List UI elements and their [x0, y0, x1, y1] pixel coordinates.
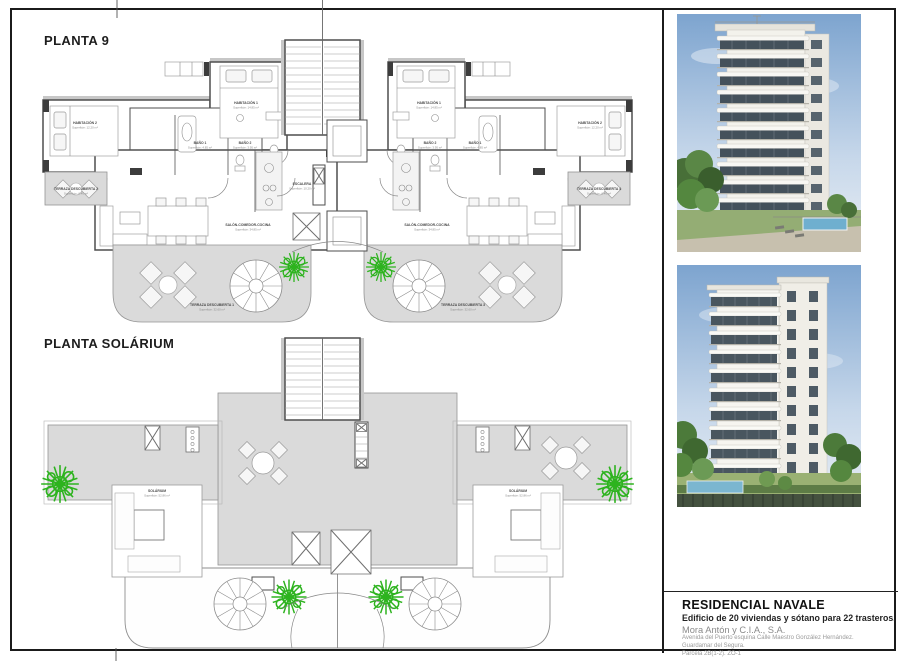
drawing-sheet: PLANTA 9 PLANTA SOLÁRIUM [0, 0, 908, 661]
pool [687, 481, 743, 493]
svg-text:TERRAZA DESCUBIERTA 4: TERRAZA DESCUBIERTA 4 [577, 187, 621, 191]
project-parcel: Parcela 2B(1-2). ZO-1 [682, 651, 898, 659]
svg-text:Superficie: 14.85 m²: Superficie: 14.85 m² [416, 105, 442, 109]
promoter-name: Mora Antón y C.I.A., S.A. [682, 625, 898, 635]
skylight-shaft [331, 530, 371, 574]
title-block-rule [664, 591, 898, 592]
svg-text:Superficie: 34.85 m²: Superficie: 34.85 m² [414, 227, 440, 231]
svg-text:BAÑO 2: BAÑO 2 [424, 140, 437, 145]
room-label: BAÑO 2 [239, 140, 252, 145]
project-name: RESIDENCIAL NAVALE [682, 598, 898, 612]
svg-text:Superficie: 52.86 m²: Superficie: 52.86 m² [144, 493, 170, 497]
project-city: Guardamar del Segura. [682, 643, 898, 651]
svg-text:Superficie: 34.85 m²: Superficie: 34.85 m² [235, 227, 261, 231]
floor-plans-drawing: HABITACIÓN 1 Superficie: 14.85 m² HABITA… [30, 0, 645, 661]
solarium-plan: SOLÁRIUM Superficie: 52.86 m² SOLÁRIUM S… [41, 338, 634, 648]
svg-text:SALÓN-COMEDOR-COCINA: SALÓN-COMEDOR-COCINA [404, 222, 450, 227]
skylight-shaft [292, 532, 320, 565]
pool [803, 218, 847, 230]
svg-text:Superficie: 6.40 m²: Superficie: 6.40 m² [587, 191, 611, 195]
tower [707, 277, 829, 481]
svg-text:Superficie: 12.20 m²: Superficie: 12.20 m² [72, 125, 98, 129]
project-address: Avenida del Puerto esquina Calle Maestro… [682, 635, 898, 643]
svg-text:Superficie: 3.95 m²: Superficie: 3.95 m² [233, 145, 257, 149]
svg-text:Superficie: 4.85 m²: Superficie: 4.85 m² [463, 145, 487, 149]
planta9-plan: HABITACIÓN 1 Superficie: 14.85 m² HABITA… [43, 0, 632, 322]
svg-text:BAÑO 1: BAÑO 1 [469, 140, 482, 145]
panel-divider [662, 8, 664, 653]
room-label: TERRAZA DESCUBIERTA 1 [190, 303, 234, 307]
room-label: SOLÁRIUM [148, 488, 166, 493]
svg-text:Superficie: 4.85 m²: Superficie: 4.85 m² [188, 145, 212, 149]
svg-text:SOLÁRIUM: SOLÁRIUM [509, 488, 527, 493]
room-label: BAÑO 1 [194, 140, 207, 145]
room-label: TERRAZA DESCUBIERTA 2 [54, 187, 98, 191]
title-block: RESIDENCIAL NAVALE Edificio de 20 vivien… [664, 591, 898, 658]
svg-text:Superficie: 3.95 m²: Superficie: 3.95 m² [418, 145, 442, 149]
svg-text:HABITACIÓN 1: HABITACIÓN 1 [417, 100, 441, 105]
building-render-2 [677, 265, 861, 507]
svg-text:TERRAZA DESCUBIERTA 3: TERRAZA DESCUBIERTA 3 [441, 303, 485, 307]
vent-shaft [314, 168, 324, 184]
svg-text:Superficie: 12.20 m²: Superficie: 12.20 m² [577, 125, 603, 129]
storage-shaft [293, 213, 320, 240]
svg-text:Superficie: 10.20 m²: Superficie: 10.20 m² [289, 186, 315, 190]
room-label: HABITACIÓN 2 [73, 120, 97, 125]
building-render-1 [677, 14, 861, 252]
svg-text:Superficie: 52.86 m²: Superficie: 52.86 m² [505, 493, 531, 497]
svg-text:HABITACIÓN 2: HABITACIÓN 2 [578, 120, 602, 125]
room-label: HABITACIÓN 1 [234, 100, 258, 105]
svg-text:Superficie: 32.60 m²: Superficie: 32.60 m² [199, 307, 225, 311]
project-subtitle: Edificio de 20 viviendas y sótano para 2… [682, 613, 898, 623]
room-label: SALÓN-COMEDOR-COCINA [225, 222, 271, 227]
room-label: ESCALERA [293, 182, 312, 186]
svg-text:Superficie: 6.40 m²: Superficie: 6.40 m² [64, 191, 88, 195]
svg-text:Superficie: 14.85 m²: Superficie: 14.85 m² [233, 105, 259, 109]
svg-text:Superficie: 32.60 m²: Superficie: 32.60 m² [450, 307, 476, 311]
tower [715, 16, 829, 222]
